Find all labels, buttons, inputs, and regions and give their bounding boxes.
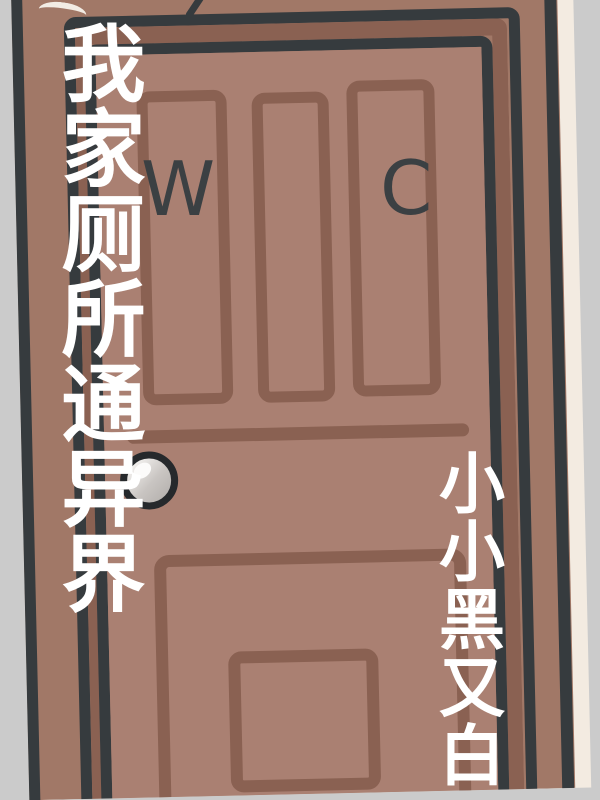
top-panel-left xyxy=(136,90,233,406)
top-panel-right xyxy=(346,79,441,397)
top-panel-middle xyxy=(251,91,335,403)
cover-background: 我家厕所通异界 W C 小小黑又白 xyxy=(0,0,600,800)
bottom-panel-inner xyxy=(228,648,381,792)
cover-author-vertical-text: 小小黑又白 xyxy=(432,449,500,799)
cover-title-vertical-text: 我家厕所通异界 xyxy=(52,20,142,800)
door-sign-letter-w: W xyxy=(141,152,215,227)
door-sign-letter-c: C xyxy=(380,151,432,226)
